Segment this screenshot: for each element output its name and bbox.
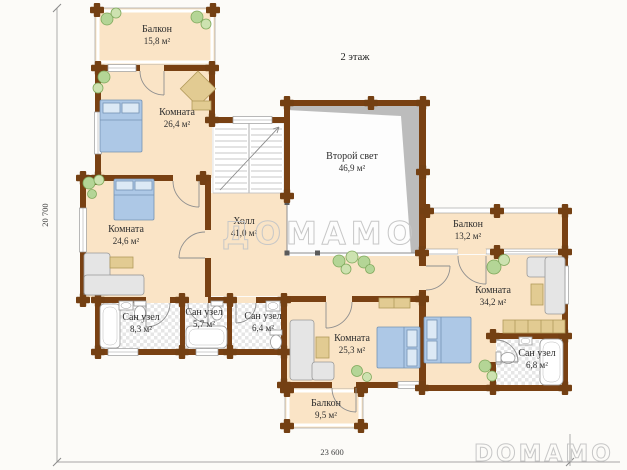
room-label-balcony-top: Балкон15,8 м²	[142, 24, 172, 47]
room-label-san-64: Сан узел6,4 м²	[244, 311, 281, 334]
double-bed	[424, 317, 471, 363]
room-label-balcony-right: Балкон13,2 м²	[453, 219, 483, 242]
table	[110, 257, 133, 268]
table	[316, 337, 329, 358]
floor-title: 2 этаж	[340, 52, 369, 63]
bathtub	[100, 304, 120, 348]
room-label-san-83: Сан узел8,3 м²	[122, 312, 159, 335]
double-bed	[100, 100, 142, 152]
room-label-san-57: Сан узел5,7 м²	[185, 307, 222, 330]
room-label-hall: Холл41,0 м²	[231, 216, 257, 239]
room-label-balcony-bottom: Балкон9,5 м²	[311, 398, 341, 421]
table	[531, 284, 543, 305]
dimension-horizontal: 23 600	[297, 447, 367, 457]
room-label-room-24: Комната24,6 м²	[108, 224, 144, 247]
sink	[266, 301, 280, 311]
room-label-san-68: Сан узел6,8 м²	[518, 348, 555, 371]
room-label-void: Второй свет46,9 м²	[326, 151, 378, 174]
dimension-vertical: 20 700	[40, 180, 50, 250]
sink	[119, 301, 133, 310]
double-bed	[114, 179, 154, 220]
room-label-room-34: Комната34,2 м²	[475, 285, 511, 308]
room-label-room-25: Комната25,3 м²	[334, 333, 370, 356]
staircase	[213, 123, 287, 193]
floorplan-page: 2 этаж Балкон15,8 м² Комната26,4 м² Комн…	[0, 0, 627, 470]
cabinet	[379, 298, 410, 308]
double-bed	[377, 327, 420, 368]
sink	[519, 337, 532, 345]
room-label-room-26: Комната26,4 м²	[159, 107, 195, 130]
void-area	[287, 103, 421, 256]
wardrobe	[503, 320, 565, 333]
